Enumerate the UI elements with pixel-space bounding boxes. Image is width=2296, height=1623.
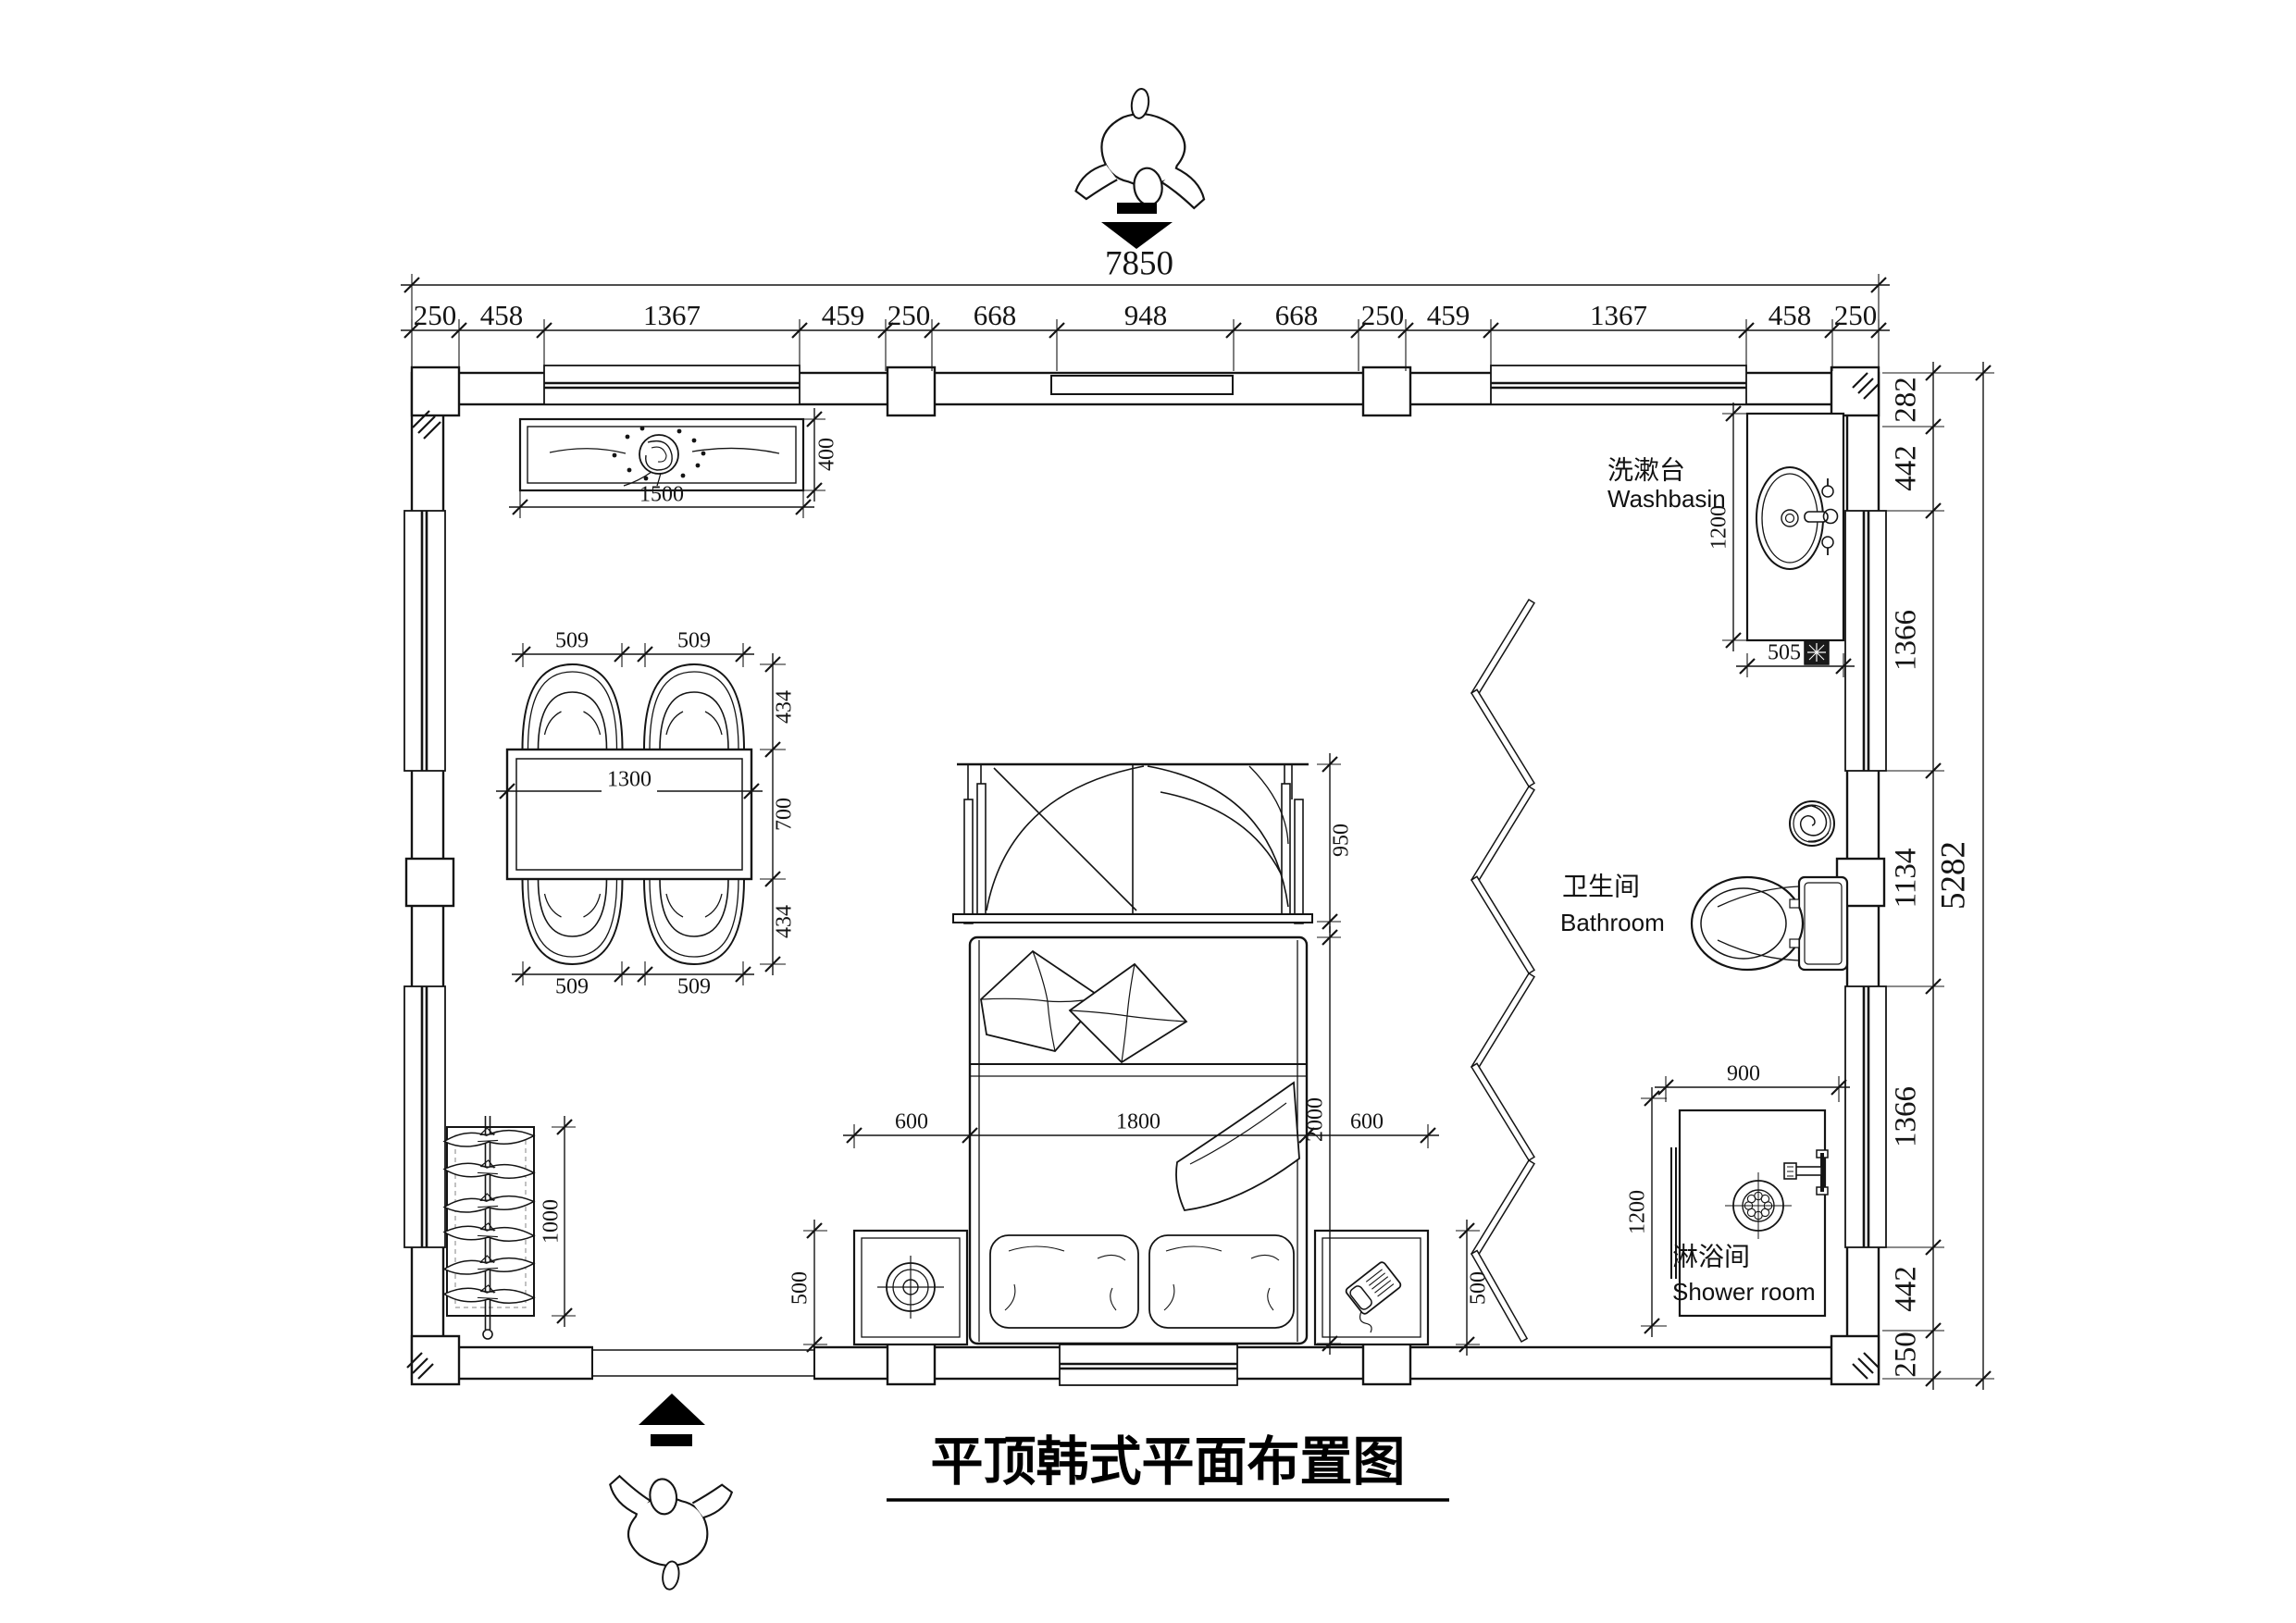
dim-top-5: 668 <box>974 299 1017 331</box>
dim-top-4: 250 <box>887 299 931 331</box>
window-left-upper <box>404 511 445 771</box>
bathroom-label-en: Bathroom <box>1560 909 1665 936</box>
dim-table-length: 1300 <box>607 768 652 792</box>
shower-label-en: Shower room <box>1672 1278 1816 1306</box>
bathroom-label-zh: 卫生间 <box>1562 872 1640 900</box>
dim-bed-side-right: 600 <box>1350 1110 1384 1134</box>
dim-top-1: 458 <box>480 299 524 331</box>
entry-arrow-bottom-icon <box>639 1394 705 1425</box>
window-bottom <box>1060 1344 1237 1385</box>
window-top-left <box>544 365 800 404</box>
dim-shower-depth: 1200 <box>1626 1190 1650 1234</box>
entry-person-top <box>1062 81 1205 249</box>
dim-right-3: 1134 <box>1890 849 1923 909</box>
floor-plan-page: 7850 250 458 1367 459 250 668 948 668 25… <box>0 0 2296 1623</box>
dim-shower-width: 900 <box>1727 1062 1760 1086</box>
nightstand-left <box>854 1231 967 1344</box>
dim-top-6: 948 <box>1124 299 1168 331</box>
nightstand-right <box>1315 1231 1428 1344</box>
dim-right-2: 1366 <box>1890 610 1923 671</box>
entry-door-opening <box>592 1342 814 1384</box>
entry-arrow-top-bar <box>1117 203 1157 214</box>
dim-cabinet-width: 1500 <box>639 483 684 507</box>
dim-right-5: 442 <box>1890 1266 1923 1312</box>
dim-top-12: 250 <box>1834 299 1878 331</box>
dim-chair-width-2: 509 <box>677 629 711 653</box>
dim-top-7: 668 <box>1275 299 1319 331</box>
dim-chair-width-4: 509 <box>677 975 711 999</box>
cabinet-group <box>520 419 803 490</box>
dim-top-total: 7850 <box>1105 244 1173 282</box>
dim-table-depth: 700 <box>773 798 797 831</box>
shower-label-zh: 淋浴间 <box>1672 1242 1750 1270</box>
dim-bed-canopy: 950 <box>1330 824 1354 857</box>
dim-nightstand-right: 500 <box>1467 1271 1491 1305</box>
floor-drain-square-icon <box>1805 640 1829 664</box>
dim-top-2: 1367 <box>643 299 701 331</box>
floor-plan-drawing: 7850 250 458 1367 459 250 668 948 668 25… <box>0 0 2296 1623</box>
dim-cabinet-depth: 400 <box>815 438 839 471</box>
washbasin-label-zh: 洗漱台 <box>1607 455 1685 484</box>
dim-bed-side-left: 600 <box>895 1110 928 1134</box>
window-right-lower <box>1845 986 1886 1247</box>
wardrobe-group <box>443 1116 534 1339</box>
dim-right-total: 5282 <box>1934 841 1972 910</box>
dim-chair-width-3: 509 <box>555 975 589 999</box>
dim-right-4: 1366 <box>1890 1086 1923 1147</box>
dim-top-3: 459 <box>822 299 865 331</box>
dim-chair-width-1: 509 <box>555 629 589 653</box>
dim-right-1: 442 <box>1890 445 1923 491</box>
window-right-upper <box>1845 511 1886 771</box>
washbasin-label-en: Washbasin <box>1607 485 1726 513</box>
dim-top-9: 459 <box>1427 299 1471 331</box>
dim-top-11: 458 <box>1769 299 1812 331</box>
dim-chair-depth-2: 434 <box>773 905 797 938</box>
window-top-right <box>1491 365 1746 404</box>
dim-top-0: 250 <box>414 299 457 331</box>
window-left-lower <box>404 986 445 1247</box>
dim-top-8: 250 <box>1361 299 1405 331</box>
dim-wardrobe-length: 1000 <box>540 1199 564 1244</box>
dim-chair-depth-1: 434 <box>773 690 797 724</box>
dim-bed-length: 2000 <box>1304 1097 1328 1142</box>
dim-bed-width: 1800 <box>1116 1110 1160 1134</box>
washbasin-group <box>1747 414 1843 664</box>
plan-title-text: 平顶韩式平面布置图 <box>931 1432 1406 1492</box>
dim-right-6: 250 <box>1890 1332 1923 1378</box>
dim-top-10: 1367 <box>1590 299 1647 331</box>
bed-body <box>970 937 1307 1344</box>
dim-right-0: 282 <box>1890 377 1923 423</box>
dim-washbasin-width: 505 <box>1768 641 1801 665</box>
entry-arrow-bottom-bar <box>651 1434 692 1446</box>
plan-title: 平顶韩式平面布置图 <box>887 1432 1449 1500</box>
dim-nightstand-left: 500 <box>788 1271 813 1305</box>
window-top-middle <box>1051 376 1233 394</box>
entry-person-bottom <box>609 1394 744 1598</box>
